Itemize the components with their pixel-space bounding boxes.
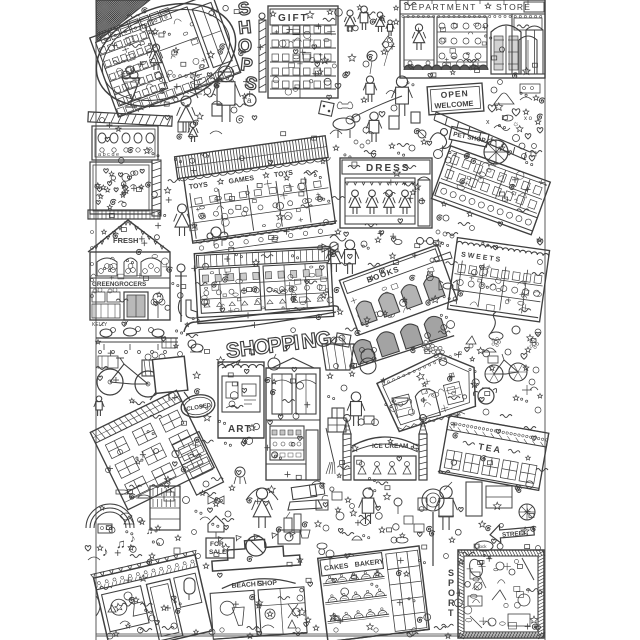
- svg-text:T: T: [448, 608, 454, 618]
- svg-text:☼: ☼: [512, 119, 519, 128]
- svg-text:♪: ♪: [102, 544, 109, 559]
- svg-text:a b c d e: a b c d e: [98, 152, 119, 158]
- svg-text:R: R: [448, 598, 455, 608]
- svg-text:DRESS: DRESS: [366, 163, 410, 174]
- svg-text:x: x: [486, 119, 490, 126]
- svg-text:H: H: [237, 17, 252, 38]
- svg-text:GIFT: GIFT: [278, 13, 309, 24]
- svg-text:DEPARTMENT: DEPARTMENT: [404, 2, 477, 12]
- svg-text:S: S: [448, 568, 454, 578]
- svg-text:G: G: [314, 327, 333, 352]
- svg-text:GREENGROCERS: GREENGROCERS: [92, 281, 146, 288]
- svg-text:♫: ♫: [116, 536, 126, 551]
- svg-text:ART: ART: [228, 424, 252, 435]
- svg-text:OPEN: OPEN: [440, 88, 469, 100]
- svg-text:a: a: [247, 96, 252, 105]
- svg-text:O: O: [448, 588, 455, 598]
- svg-text:STORE: STORE: [496, 2, 531, 12]
- svg-text:x o: x o: [524, 116, 533, 122]
- svg-text:♫: ♫: [146, 526, 154, 537]
- svg-text:ICE CREAM: ICE CREAM: [372, 443, 408, 450]
- svg-text:P: P: [448, 578, 454, 588]
- svg-text:KELLY: KELLY: [92, 322, 108, 328]
